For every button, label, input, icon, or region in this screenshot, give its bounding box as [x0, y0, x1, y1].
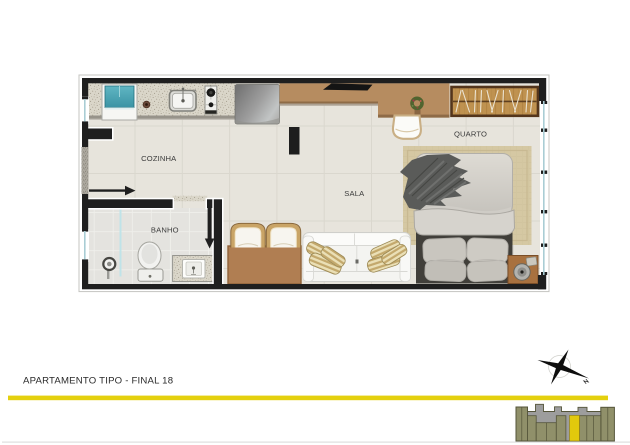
svg-text:COZINHA: COZINHA: [141, 154, 177, 163]
svg-text:SALA: SALA: [344, 189, 365, 198]
svg-text:QUARTO: QUARTO: [454, 129, 487, 138]
svg-text:APARTAMENTO TIPO - FINAL 18: APARTAMENTO TIPO - FINAL 18: [23, 376, 173, 387]
svg-text:BANHO: BANHO: [151, 226, 179, 235]
